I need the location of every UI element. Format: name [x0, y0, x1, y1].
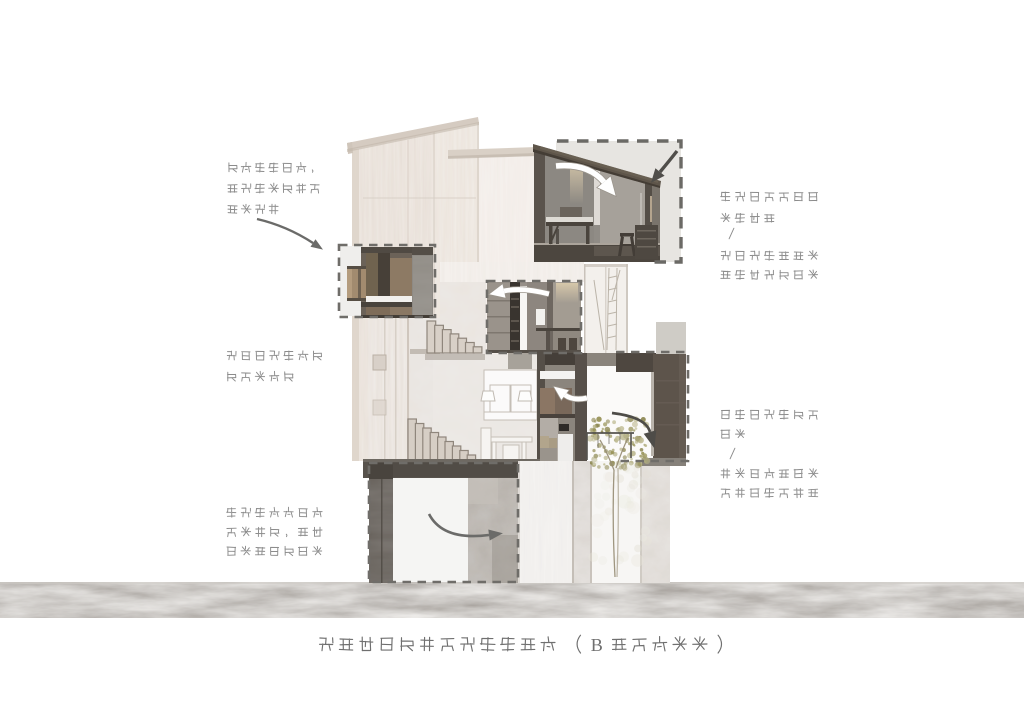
svg-text:B: B [591, 635, 603, 655]
